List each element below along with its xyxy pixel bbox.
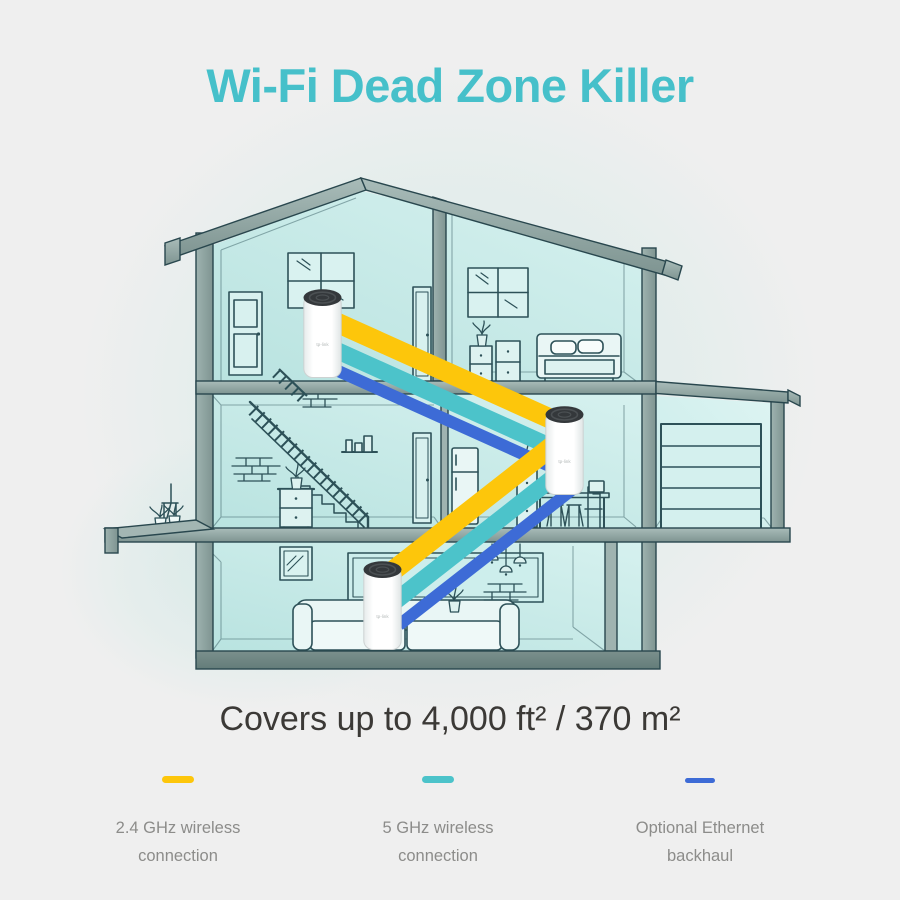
legend-label-24ghz: 2.4 GHz wireless connection bbox=[68, 814, 288, 870]
nightstand-2 bbox=[496, 341, 520, 387]
page-title: Wi-Fi Dead Zone Killer bbox=[0, 58, 900, 113]
deco-unit-living bbox=[364, 561, 402, 649]
bed bbox=[537, 334, 621, 382]
legend-item-5ghz: 5 GHz wireless connection bbox=[328, 770, 548, 870]
swatch-ethernet-icon bbox=[685, 778, 715, 783]
swatch-5ghz-icon bbox=[422, 776, 454, 783]
legend-label-line: 2.4 GHz wireless bbox=[68, 814, 288, 842]
deco-logo-attic: tp-link bbox=[316, 342, 329, 347]
legend-label-line: Optional Ethernet bbox=[590, 814, 810, 842]
wall-picture bbox=[280, 547, 312, 580]
garage-right-wall bbox=[771, 398, 784, 530]
swatch-24ghz-icon bbox=[162, 776, 194, 783]
legend-label-line: connection bbox=[68, 842, 288, 870]
porch-edge bbox=[105, 528, 118, 553]
deco-logo-living: tp-link bbox=[376, 614, 389, 619]
left-wall bbox=[196, 233, 213, 658]
deco-unit-dining bbox=[546, 406, 584, 494]
legend-item-24ghz: 2.4 GHz wireless connection bbox=[68, 770, 288, 870]
dresser bbox=[278, 489, 314, 530]
legend-label-line: connection bbox=[328, 842, 548, 870]
lower-partition-wall bbox=[605, 542, 617, 651]
deco-logo-dining: tp-link bbox=[558, 459, 571, 464]
legend: 2.4 GHz wireless connection 5 GHz wirele… bbox=[0, 770, 900, 880]
ground-slab bbox=[196, 651, 660, 669]
right-wall bbox=[642, 248, 656, 660]
middle-door bbox=[413, 433, 431, 523]
legend-item-ethernet: Optional Ethernet backhaul bbox=[590, 770, 810, 870]
deco-unit-attic bbox=[304, 289, 342, 377]
table-monitor bbox=[589, 481, 604, 494]
bedroom-window bbox=[468, 268, 528, 317]
poster: tp-link tp-link tp-link Wi-Fi Dead Zone … bbox=[0, 0, 900, 900]
attic-door bbox=[229, 292, 262, 375]
coverage-text: Covers up to 4,000 ft² / 370 m² bbox=[0, 700, 900, 739]
house-diagram: tp-link tp-link tp-link bbox=[0, 0, 900, 900]
legend-label-line: 5 GHz wireless bbox=[328, 814, 548, 842]
attic-partition-wall bbox=[433, 197, 446, 381]
legend-label-line: backhaul bbox=[590, 842, 810, 870]
legend-label-ethernet: Optional Ethernet backhaul bbox=[590, 814, 810, 870]
legend-label-5ghz: 5 GHz wireless connection bbox=[328, 814, 548, 870]
garage-door bbox=[661, 424, 761, 530]
